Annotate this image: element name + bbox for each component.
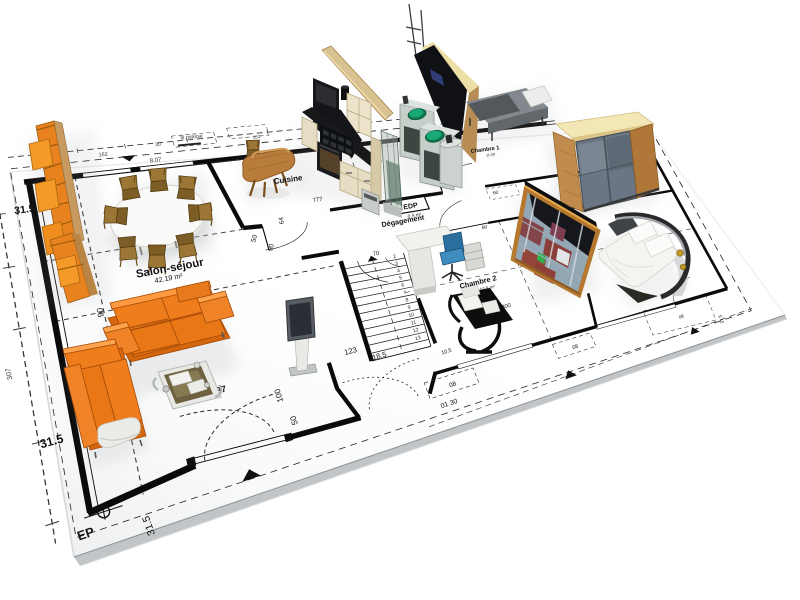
svg-text:11.50: 11.50	[486, 152, 495, 157]
svg-text:Dégagement: Dégagement	[381, 213, 426, 230]
svg-text:Cuisine: Cuisine	[273, 173, 303, 186]
